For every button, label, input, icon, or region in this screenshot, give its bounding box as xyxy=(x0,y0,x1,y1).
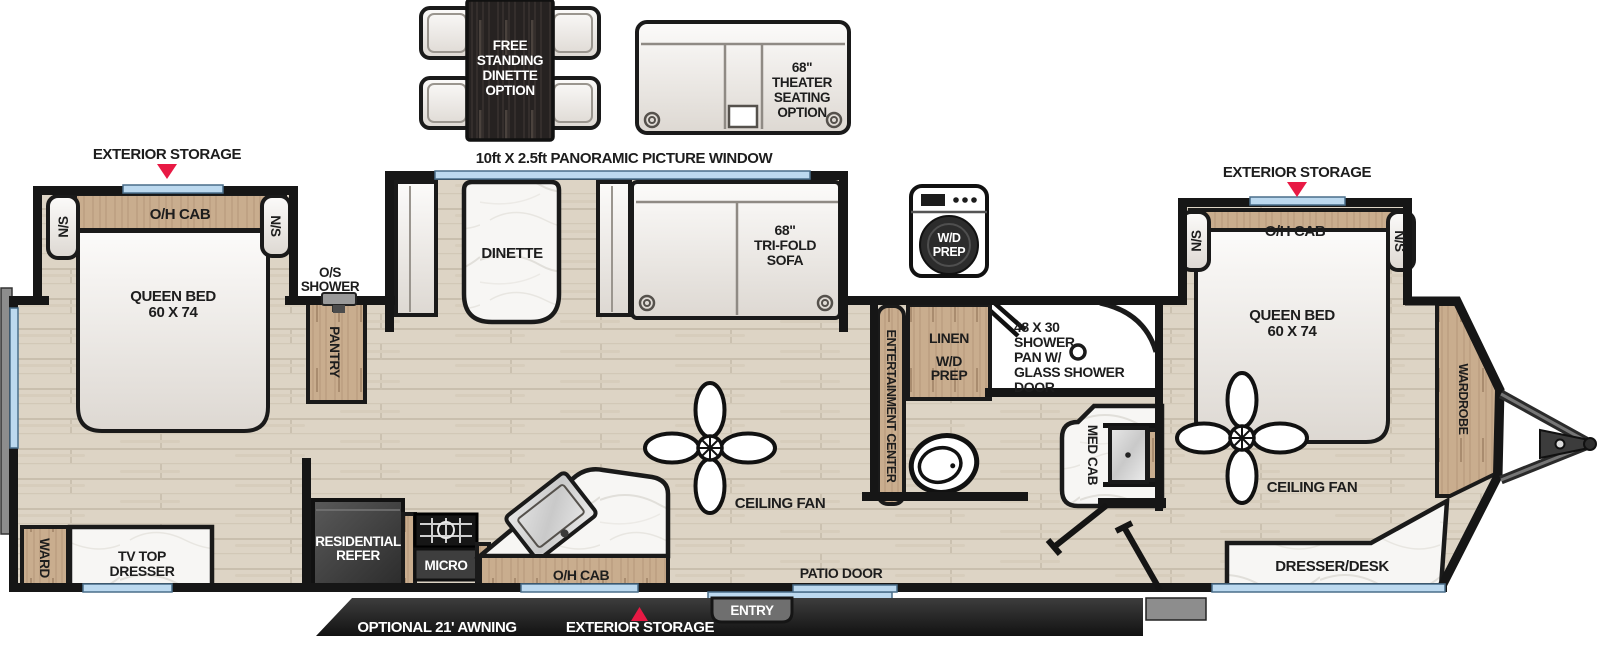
refrigerator-label: RESIDENTIAL xyxy=(315,534,401,549)
oh-cab-label: O/H CAB xyxy=(553,567,610,583)
trailer-hitch xyxy=(1501,394,1596,480)
os-shower-label: O/S xyxy=(319,265,341,280)
microwave-label: MICRO xyxy=(425,558,468,573)
theater-option-label: THEATER xyxy=(772,75,833,90)
theater-option-label: SEATING xyxy=(774,90,830,105)
awning-label: OPTIONAL 21' AWNING xyxy=(357,619,516,636)
shower-label: 48 X 30 xyxy=(1014,319,1060,335)
rear-wall-window xyxy=(10,308,18,448)
med-cab-label: MED CAB xyxy=(1085,425,1100,486)
free-standing-dinette-option: FREE STANDING DINETTE OPTION xyxy=(421,0,599,140)
entertainment-center-label: ENTERTAINMENT CENTER xyxy=(884,330,898,483)
pantry-label: PANTRY xyxy=(327,326,342,378)
rear-queen-bed xyxy=(78,231,268,431)
nightstand-label: N/S xyxy=(268,215,283,237)
ward-label: WARD xyxy=(37,538,52,578)
tv-dresser-label: TV TOP xyxy=(118,548,166,564)
entry-label: ENTRY xyxy=(730,603,774,618)
exterior-storage-label: EXTERIOR STORAGE xyxy=(93,146,242,163)
tv-dresser-label: DRESSER xyxy=(110,563,175,579)
wd-prep-label: W/D xyxy=(937,231,960,245)
dinette-bench-right xyxy=(598,182,630,315)
ceiling-fan-label: CEILING FAN xyxy=(1267,479,1358,496)
queen-bed-label: 60 X 74 xyxy=(1268,323,1318,340)
floorplan-canvas: FREE STANDING DINETTE OPTION 68" THEATER… xyxy=(0,0,1600,650)
patio-door-label: PATIO DOOR xyxy=(800,565,883,581)
exterior-storage-marker-left xyxy=(157,164,177,179)
shower-label: SHOWER xyxy=(1014,334,1075,350)
bottom-window-front xyxy=(1212,584,1445,592)
oh-cab-label: O/H CAB xyxy=(1265,223,1326,240)
exterior-storage-label: EXTERIOR STORAGE xyxy=(566,619,715,636)
ceiling-fan-label: CEILING FAN xyxy=(735,495,826,512)
bottom-window-kitchen xyxy=(521,584,638,592)
exterior-step xyxy=(1146,598,1206,620)
washer-dryer-prep-icon: W/D PREP xyxy=(911,186,987,276)
dinette-option-label: STANDING xyxy=(477,53,543,68)
sofa-label: 68" xyxy=(774,222,795,238)
wd-prep-label: PREP xyxy=(931,367,968,383)
queen-bed-label: 60 X 74 xyxy=(149,304,199,321)
sofa-label: SOFA xyxy=(767,252,804,268)
dinette-option-label: OPTION xyxy=(485,83,534,98)
oh-cab-label: O/H CAB xyxy=(150,206,211,223)
theater-option-label: OPTION xyxy=(777,105,826,120)
queen-bed-label: QUEEN BED xyxy=(130,288,216,305)
nightstand-label: N/S xyxy=(56,216,71,238)
nightstand-label: N/S xyxy=(1392,230,1407,252)
dresser-desk-label: DRESSER/DESK xyxy=(1275,558,1389,575)
nightstand-label: N/S xyxy=(1189,230,1204,252)
wardrobe-label: WARDROBE xyxy=(1456,363,1470,434)
theater-option-label: 68" xyxy=(792,60,812,75)
shower-label: DOOR xyxy=(1014,379,1055,395)
dinette-label: DINETTE xyxy=(481,245,543,262)
queen-bed-label: QUEEN BED xyxy=(1249,307,1335,324)
shower-label: PAN W/ xyxy=(1014,349,1062,365)
sofa-label: TRI-FOLD xyxy=(754,237,816,253)
panoramic-window-label: 10ft X 2.5ft PANORAMIC PICTURE WINDOW xyxy=(476,150,774,167)
theater-seating-option: 68" THEATER SEATING OPTION xyxy=(637,22,849,133)
exterior-storage-label: EXTERIOR STORAGE xyxy=(1223,164,1372,181)
linen-label: LINEN xyxy=(929,330,969,346)
kitchen-filler-cab xyxy=(403,514,415,589)
wd-prep-label: PREP xyxy=(933,245,966,259)
os-shower-label: SHOWER xyxy=(301,279,360,294)
dinette-option-label: FREE xyxy=(493,38,528,53)
front-slide-window xyxy=(1250,197,1345,205)
dinette-bench-left xyxy=(396,182,436,315)
bottom-window-rear xyxy=(83,584,172,592)
refrigerator-label: REFER xyxy=(336,548,380,563)
cooktop xyxy=(415,514,477,547)
dinette-option-label: DINETTE xyxy=(483,68,538,83)
shower-label: GLASS SHOWER xyxy=(1014,364,1125,380)
linen-cab xyxy=(908,305,990,399)
panoramic-window xyxy=(435,171,810,179)
floorplan-svg: FREE STANDING DINETTE OPTION 68" THEATER… xyxy=(0,0,1600,650)
patio-door-panel xyxy=(793,585,897,592)
rear-slide-window xyxy=(123,185,223,193)
exterior-storage-marker-right xyxy=(1287,182,1307,197)
